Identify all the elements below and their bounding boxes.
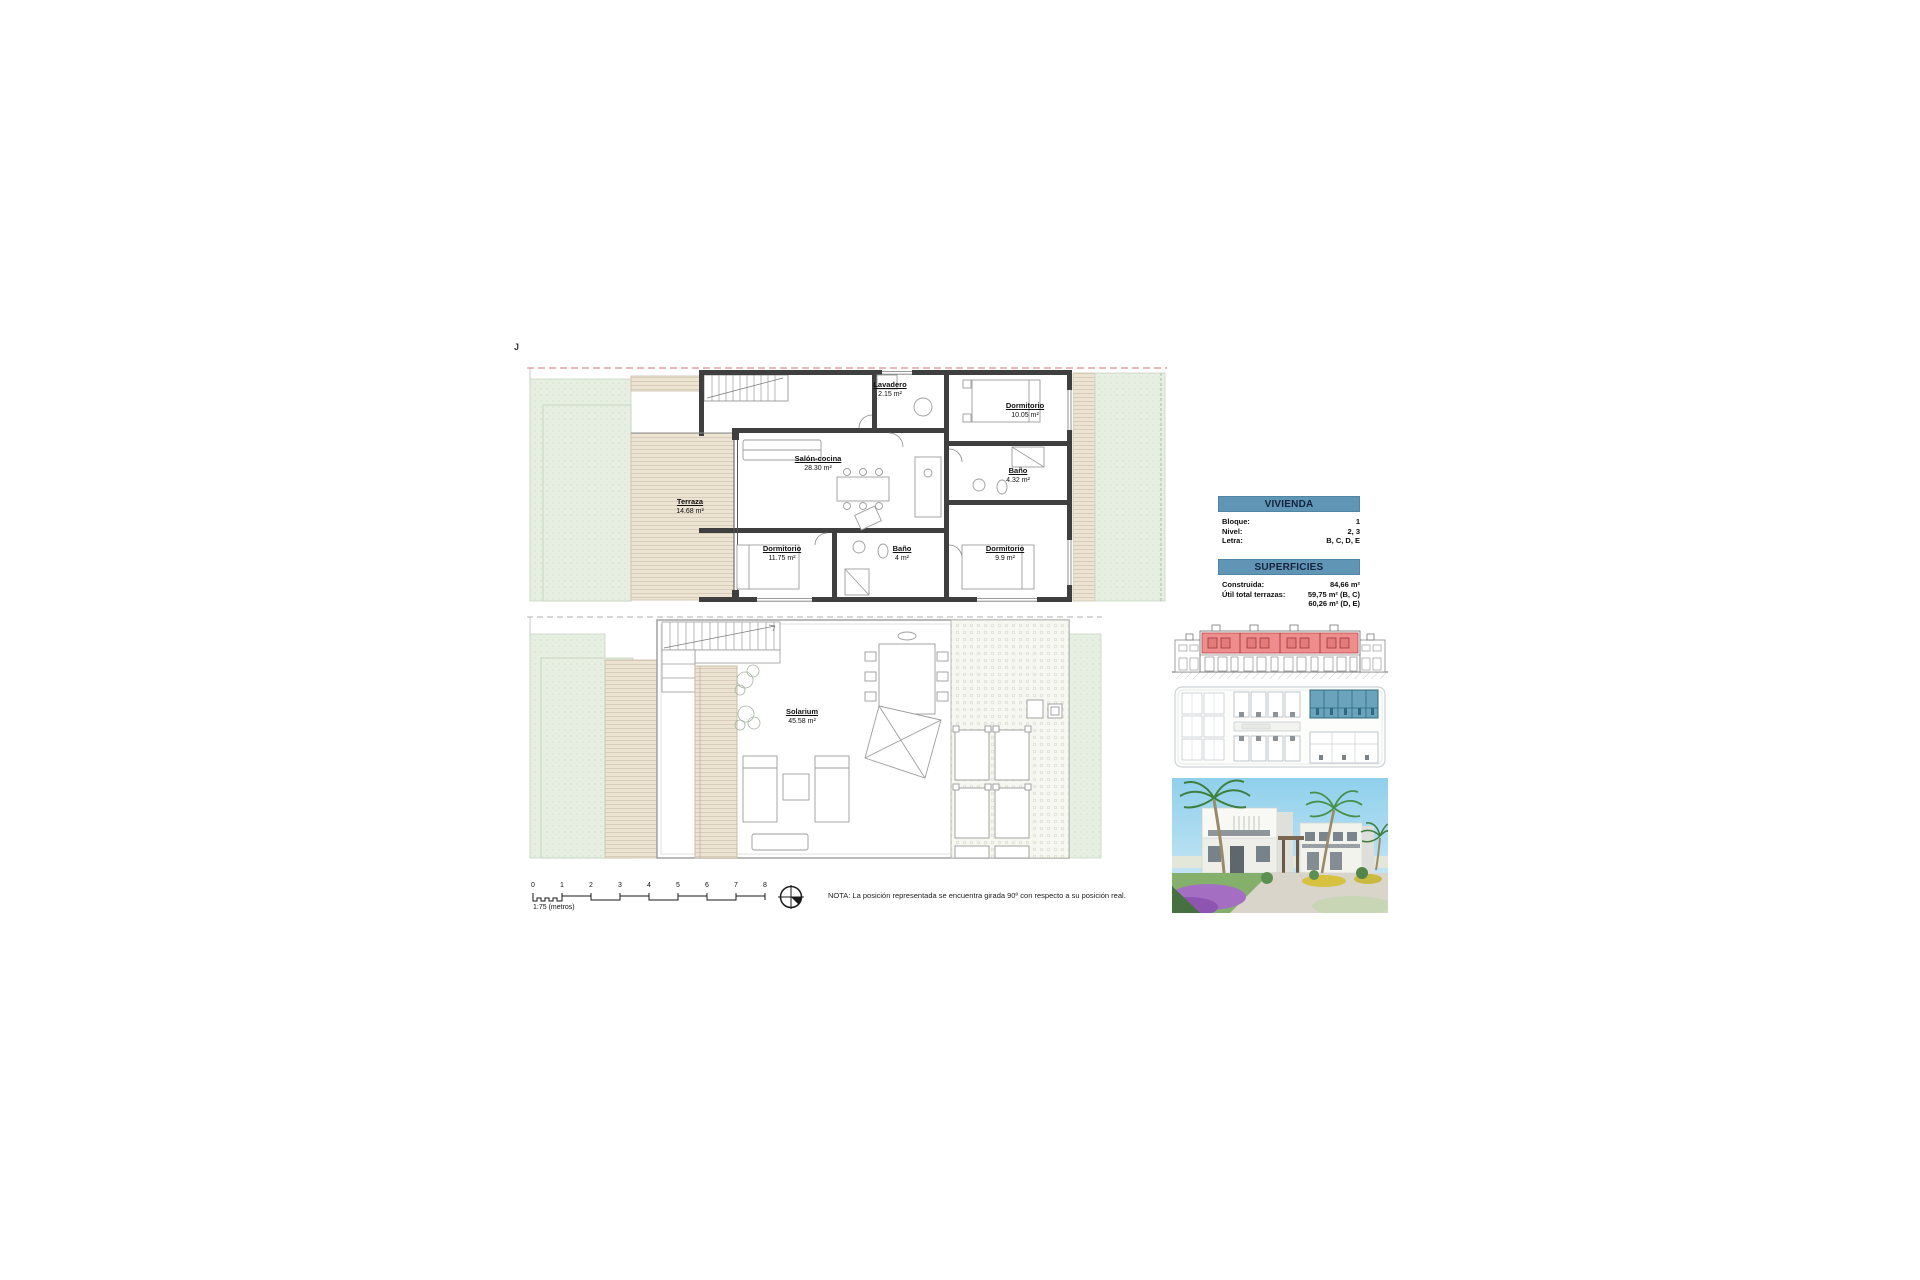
vivienda-row-nivel: Nivel: 2, 3	[1222, 527, 1360, 537]
plan-sheet: J	[0, 0, 1920, 1280]
superficies-row-terrazas: Útil total terrazas: 59,75 m² (B, C)	[1222, 590, 1360, 600]
scale-tick-5: 5	[676, 882, 680, 889]
upper-floor-plan	[527, 345, 1167, 605]
solarium-plan-drawing	[527, 608, 1105, 860]
vivienda-table: Bloque: 1 Nivel: 2, 3 Letra: B, C, D, E	[1222, 517, 1360, 546]
scale-tick-6: 6	[705, 882, 709, 889]
room-label-dormitorio-3: Dormitorio 9.9 m²	[986, 544, 1024, 563]
vivienda-row-letra: Letra: B, C, D, E	[1222, 536, 1360, 546]
scale-tick-1: 1	[560, 882, 564, 889]
vivienda-row-bloque: Bloque: 1	[1222, 517, 1360, 527]
room-label-bano-1: Baño 4.32 m²	[1006, 466, 1030, 485]
superficies-header: SUPERFICIES	[1218, 559, 1360, 575]
room-label-salon-cocina: Salón-cocina 28.30 m²	[795, 454, 842, 473]
superficies-table: Construida: 84,66 m² Útil total terrazas…	[1222, 580, 1360, 609]
orientation-note: NOTA: La posición representada se encuen…	[828, 891, 1126, 900]
superficies-row-terrazas-2: 60,26 m² (D, E)	[1222, 599, 1360, 609]
superficies-row-construida: Construida: 84,66 m²	[1222, 580, 1360, 590]
scale-ratio-label: 1:75 (metros)	[533, 904, 575, 911]
scale-tick-2: 2	[589, 882, 593, 889]
render-image	[1172, 778, 1388, 913]
upper-floor-plan-drawing	[527, 345, 1167, 605]
room-label-bano-2: Baño 4 m²	[893, 544, 912, 563]
room-label-dormitorio-1: Dormitorio 10.05 m²	[1006, 401, 1044, 420]
scale-tick-3: 3	[618, 882, 622, 889]
room-label-solarium: Solarium 45.58 m²	[786, 707, 818, 726]
scale-tick-0: 0	[531, 882, 535, 889]
room-label-terraza: Terraza 14.68 m²	[676, 497, 704, 516]
room-label-lavadero: Lavadero 2.15 m²	[873, 380, 906, 399]
north-compass-icon	[778, 884, 804, 910]
sheet-marker: J	[514, 342, 519, 352]
scale-tick-7: 7	[734, 882, 738, 889]
scale-tick-4: 4	[647, 882, 651, 889]
elevation-drawing	[1172, 615, 1388, 681]
solarium-floor-plan	[527, 608, 1105, 860]
scale-tick-8: 8	[763, 882, 767, 889]
site-plan	[1172, 682, 1388, 772]
vivienda-header: VIVIENDA	[1218, 496, 1360, 512]
room-label-dormitorio-2: Dormitorio 11.75 m²	[763, 544, 801, 563]
